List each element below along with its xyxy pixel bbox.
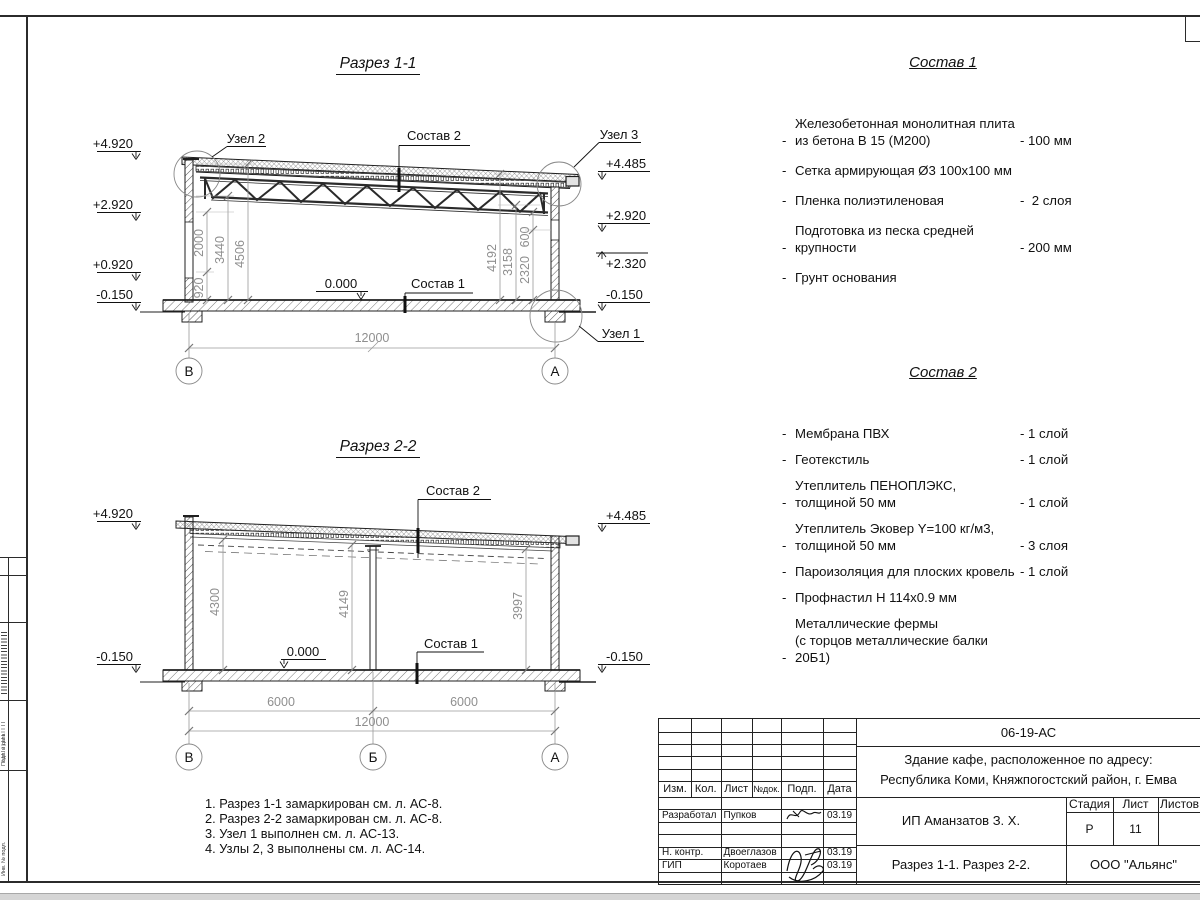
roof-edge-closure-2-2	[566, 536, 579, 545]
foundation-left-1-1	[182, 311, 202, 322]
tb-stage-header: Стадия	[1066, 797, 1113, 813]
material-name: Пароизоляция для плоских кровель	[795, 563, 1020, 580]
side-stamp-microtext	[1, 632, 7, 696]
svg-text:6000: 6000	[450, 695, 478, 709]
elevation-marks-right-2-2: +4.485 -0.150	[598, 508, 650, 673]
svg-text:4192: 4192	[485, 244, 499, 272]
svg-text:3158: 3158	[501, 248, 515, 276]
tb-sheet-name: Разрез 1-1. Разрез 2-2.	[856, 845, 1066, 884]
svg-text:+2.320: +2.320	[606, 256, 646, 271]
material-value: - 1 слой	[1020, 563, 1104, 580]
tb-sheet-header: Лист	[1113, 797, 1158, 813]
composition-1-title: Состав 1	[782, 54, 1104, 71]
tb-col-podp: Подп.	[781, 781, 823, 797]
frame-top	[0, 15, 1200, 17]
right-wall-2-2	[551, 536, 559, 670]
sheet-edge-shadow	[0, 893, 1200, 900]
tb-object-line2: Республика Коми, Княжпогостский район, г…	[856, 769, 1200, 789]
material-name: Геотекстиль	[795, 451, 1020, 468]
side-stamp-h2	[0, 575, 26, 576]
svg-text:+4.485: +4.485	[606, 508, 646, 523]
roof-edge-closure-1-1	[566, 177, 579, 187]
svg-text:+2.920: +2.920	[93, 197, 133, 212]
svg-text:-0.150: -0.150	[606, 287, 643, 302]
zero-level-2-2: 0.000	[287, 644, 320, 659]
comp1-callout-2-2: Состав 1	[424, 636, 478, 651]
axis-label-v-2-2: В	[184, 750, 193, 765]
elevation-marks-right-1-1: +4.485 +2.920 +2.320 -0.150	[596, 156, 650, 311]
list-item: - Сетка армирующая Ø3 100х100 мм	[782, 162, 1104, 179]
tb-role-developer: Разработал	[659, 809, 724, 822]
node-1-label: Узел 1	[602, 326, 641, 341]
list-dash: -	[782, 162, 795, 179]
title-block: Изм. Кол. Лист №док. Подп. Дата Разработ…	[658, 718, 1200, 885]
list-item: - Пароизоляция для плоских кровель - 1 с…	[782, 563, 1104, 580]
material-value: - 1 слой	[1020, 425, 1104, 442]
svg-text:-0.150: -0.150	[96, 649, 133, 664]
bottom-dims-2-2: 6000 6000 12000	[185, 672, 559, 744]
tb-sheets-header: Листов	[1158, 797, 1200, 813]
material-value: - 1 слой	[1020, 494, 1104, 511]
svg-text:2320: 2320	[518, 256, 532, 284]
list-item: - Пленка полиэтиленовая - 2 слоя	[782, 192, 1104, 209]
composition-1-list: Состав 1 - Железобетонная монолитная пли…	[782, 54, 1104, 299]
drawing-sheet: Подп. и дата Инв. № подл. Разрез 1-1	[0, 0, 1200, 900]
section-1-1-title: Разрез 1-1	[340, 55, 417, 72]
svg-text:+0.920: +0.920	[93, 257, 133, 272]
floor-slab-2-2	[163, 670, 580, 681]
tb-doc-number: 06-19-АС	[856, 719, 1200, 746]
tb-name-gip: Коротаев	[721, 859, 785, 872]
tb-role-gip: ГИП	[659, 859, 724, 872]
list-item: - Утеплитель ПЕНОПЛЭКС, толщиной 50 мм -…	[782, 477, 1104, 511]
svg-text:12000: 12000	[355, 715, 390, 729]
list-item: - Грунт основания	[782, 269, 1104, 286]
bottom-dim-1-1: 12000	[185, 313, 559, 358]
comp1-callout-1-1: Состав 1	[411, 276, 465, 291]
tb-object-line1: Здание кафе, расположенное по адресу:	[856, 749, 1200, 769]
axis-label-a-1-1: А	[550, 364, 559, 379]
material-value: - 100 мм	[1020, 132, 1104, 149]
section-2-2-drawing: Разрез 2-2 Состав 2 Состав 1	[85, 420, 695, 780]
svg-text:4300: 4300	[208, 588, 222, 616]
svg-text:+4.920: +4.920	[93, 506, 133, 521]
left-wall-2-2	[183, 516, 199, 670]
tb-col-kol: Кол.	[691, 781, 721, 797]
list-dash: -	[782, 649, 795, 666]
svg-text:4506: 4506	[233, 240, 247, 268]
side-stamp-h5	[0, 770, 26, 771]
node-3-label: Узел 3	[600, 127, 639, 142]
list-item: - Железобетонная монолитная плита из бет…	[782, 115, 1104, 149]
list-item: - Мембрана ПВХ - 1 слой	[782, 425, 1104, 442]
elevation-marks-left-1-1: +4.920 +2.920 +0.920 -0.150	[93, 136, 141, 311]
svg-text:+4.920: +4.920	[93, 136, 133, 151]
side-stamp-h1	[0, 557, 26, 558]
svg-text:+4.485: +4.485	[606, 156, 646, 171]
material-value: - 200 мм	[1020, 239, 1104, 256]
note-line: 2. Разрез 2-2 замаркирован см. л. АС-8.	[205, 812, 442, 827]
list-dash: -	[782, 192, 795, 209]
svg-text:600: 600	[518, 227, 532, 248]
axis-label-b-2-2: Б	[369, 750, 378, 765]
list-dash: -	[782, 132, 795, 149]
axis-label-v-1-1: В	[184, 364, 193, 379]
list-dash: -	[782, 425, 795, 442]
svg-text:920: 920	[192, 278, 206, 299]
elevation-marks-left-2-2: +4.920 -0.150	[93, 506, 141, 673]
material-name: Подготовка из песка средней крупности	[795, 222, 1020, 256]
list-dash: -	[782, 451, 795, 468]
material-name: Металлические фермы (с торцов металличес…	[795, 615, 1020, 666]
list-dash: -	[782, 589, 795, 606]
svg-text:+2.920: +2.920	[606, 208, 646, 223]
note-line: 3. Узел 1 выполнен см. л. АС-13.	[205, 827, 442, 842]
material-name: Профнастил Н 114х0.9 мм	[795, 589, 1020, 606]
comp2-callout-2-2: Состав 2	[426, 483, 480, 498]
side-stamp-label-inv: Инв. № подл.	[1, 842, 7, 876]
middle-column-2-2	[365, 546, 381, 670]
list-dash: -	[782, 269, 795, 286]
svg-text:-0.150: -0.150	[96, 287, 133, 302]
list-item: - Профнастил Н 114х0.9 мм	[782, 589, 1104, 606]
signature-gip	[781, 841, 829, 885]
signature-developer	[783, 805, 823, 825]
tb-col-list: Лист	[721, 781, 753, 797]
comp2-callout-1-1: Состав 2	[407, 128, 461, 143]
svg-text:4149: 4149	[337, 590, 351, 618]
tb-name-developer: Пупков	[721, 809, 785, 822]
composition-2-list: Состав 2 - Мембрана ПВХ - 1 слой - Геоте…	[782, 364, 1104, 675]
svg-text:-0.150: -0.150	[606, 649, 643, 664]
section-1-1-drawing: Разрез 1-1	[85, 40, 695, 390]
svg-text:6000: 6000	[267, 695, 295, 709]
material-value: - 3 слоя	[1020, 537, 1104, 554]
tb-sheet-value: 11	[1113, 812, 1158, 845]
section-2-2-title: Разрез 2-2	[340, 438, 417, 455]
tb-date-developer: 03.19	[823, 809, 856, 822]
material-name: Мембрана ПВХ	[795, 425, 1020, 442]
sheet-notes: 1. Разрез 1-1 замаркирован см. л. АС-8. …	[205, 797, 442, 857]
list-dash: -	[782, 563, 795, 580]
tb-role-ncontrol: Н. контр.	[659, 847, 724, 860]
note-line: 4. Узлы 2, 3 выполнены см. л. АС-14.	[205, 842, 442, 857]
side-stamp-label-podp: Подп. и дата	[1, 734, 7, 766]
zero-level-1-1: 0.000	[325, 276, 358, 291]
tb-col-ndok: №док.	[752, 781, 781, 797]
tb-stage-value: Р	[1066, 812, 1113, 845]
material-value: - 1 слой	[1020, 451, 1104, 468]
tb-client: ИП Аманзатов З. Х.	[856, 797, 1066, 846]
tb-organization: ООО "Альянс"	[1066, 845, 1200, 884]
tb-col-data: Дата	[823, 781, 856, 797]
side-stamp-divider	[8, 557, 9, 882]
side-stamp-h4	[0, 700, 26, 701]
material-name: Пленка полиэтиленовая	[795, 192, 1020, 209]
list-item: - Геотекстиль - 1 слой	[782, 451, 1104, 468]
material-name: Грунт основания	[795, 269, 1020, 286]
axis-label-a-2-2: А	[550, 750, 559, 765]
corner-box-line-h	[1185, 41, 1200, 42]
tb-col-izm: Изм.	[659, 781, 691, 797]
svg-text:2000: 2000	[192, 229, 206, 257]
material-name: Утеплитель ПЕНОПЛЭКС, толщиной 50 мм	[795, 477, 1020, 511]
material-name: Железобетонная монолитная плита из бетон…	[795, 115, 1020, 149]
tb-name-ncontrol: Двоеглазов	[721, 847, 785, 860]
note-line: 1. Разрез 1-1 замаркирован см. л. АС-8.	[205, 797, 442, 812]
list-dash: -	[782, 239, 795, 256]
svg-text:12000: 12000	[355, 331, 390, 345]
list-dash: -	[782, 494, 795, 511]
list-item: - Подготовка из песка средней крупности …	[782, 222, 1104, 256]
list-dash: -	[782, 537, 795, 554]
material-name: Сетка армирующая Ø3 100х100 мм	[795, 162, 1020, 179]
list-item: - Утеплитель Эковер Y=100 кг/м3, толщино…	[782, 520, 1104, 554]
dims-vert-2-2: 4300 4149 3997	[208, 536, 530, 674]
svg-text:3440: 3440	[213, 236, 227, 264]
list-item: - Металлические фермы (с торцов металлич…	[782, 615, 1104, 666]
composition-2-title: Состав 2	[782, 364, 1104, 381]
svg-text:3997: 3997	[511, 592, 525, 620]
corner-box-line-v	[1185, 16, 1186, 41]
right-wall-1-1	[551, 187, 559, 300]
node-2-label: Узел 2	[227, 131, 266, 146]
frame-left	[26, 15, 28, 883]
material-name: Утеплитель Эковер Y=100 кг/м3, толщиной …	[795, 520, 1020, 554]
side-stamp-h3	[0, 622, 26, 623]
material-value: - 2 слоя	[1020, 192, 1104, 209]
